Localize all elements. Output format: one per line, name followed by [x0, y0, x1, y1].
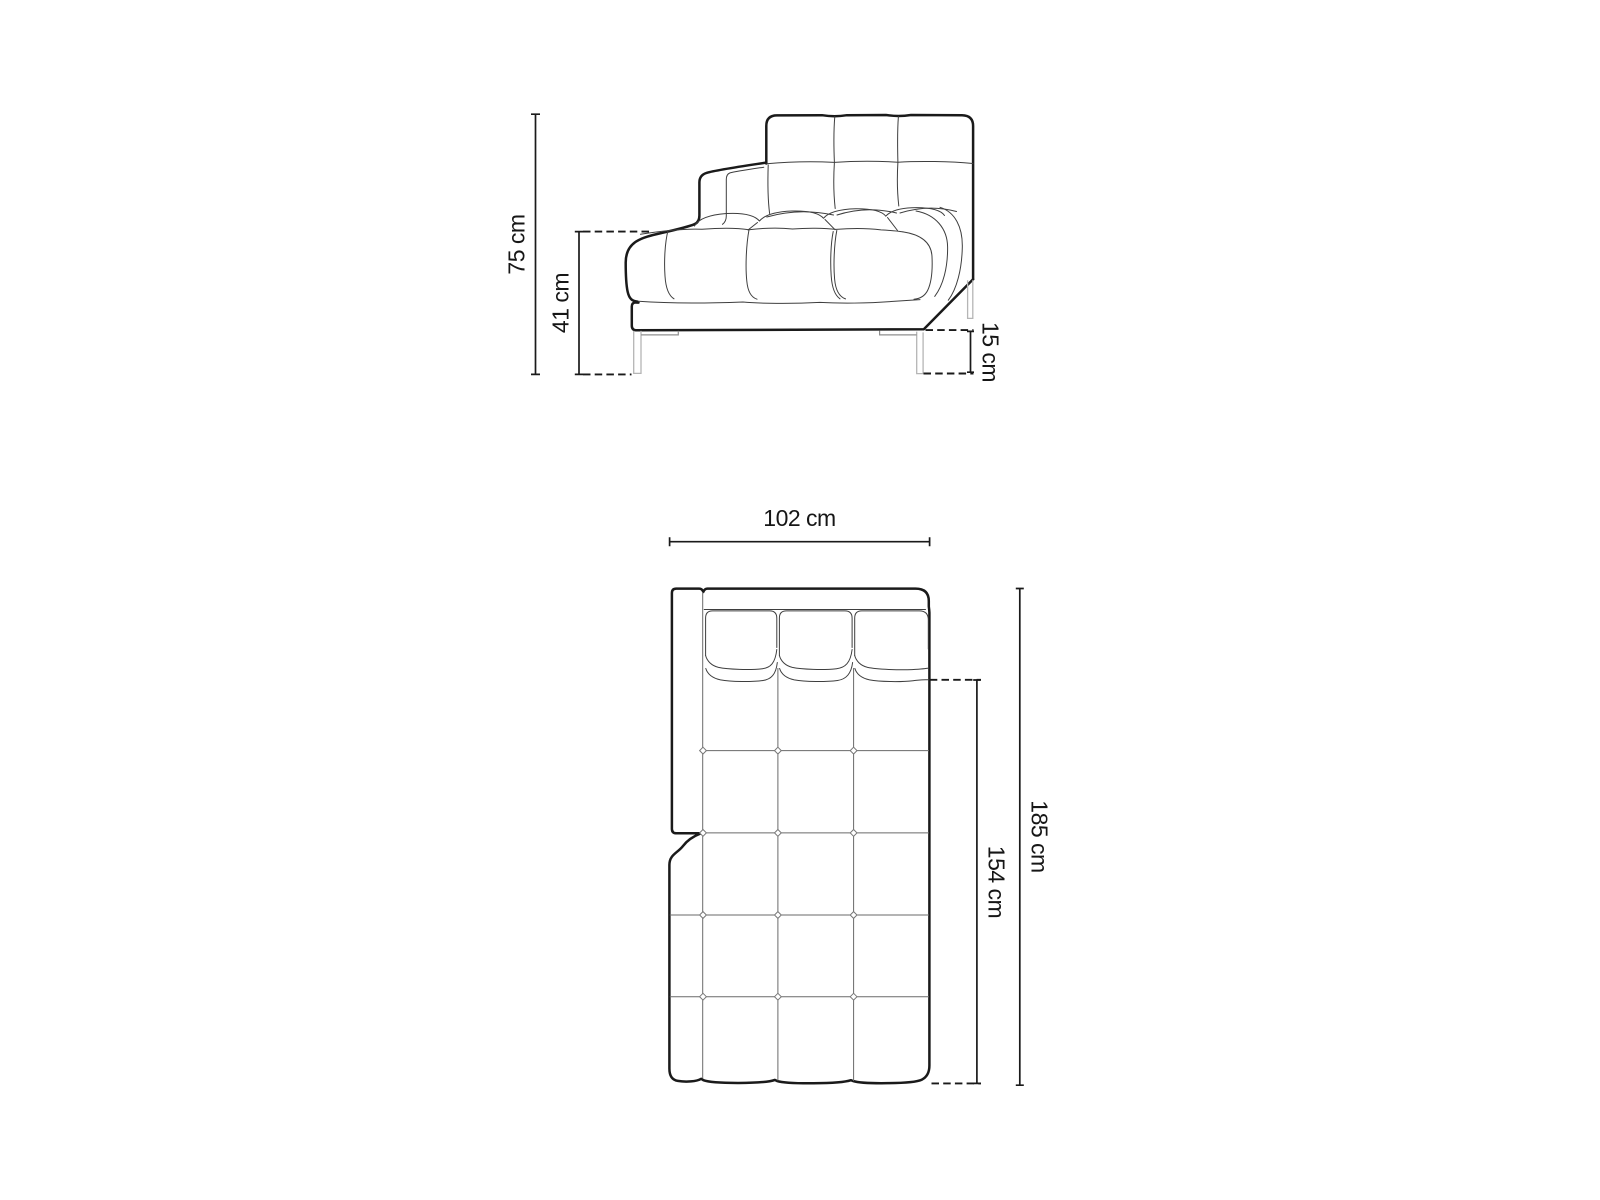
svg-text:75 cm: 75 cm — [504, 214, 530, 274]
svg-text:15 cm: 15 cm — [978, 322, 1004, 382]
svg-text:154 cm: 154 cm — [984, 846, 1010, 918]
svg-text:185 cm: 185 cm — [1027, 800, 1053, 872]
svg-text:41 cm: 41 cm — [548, 273, 574, 333]
svg-text:102 cm: 102 cm — [763, 505, 835, 531]
